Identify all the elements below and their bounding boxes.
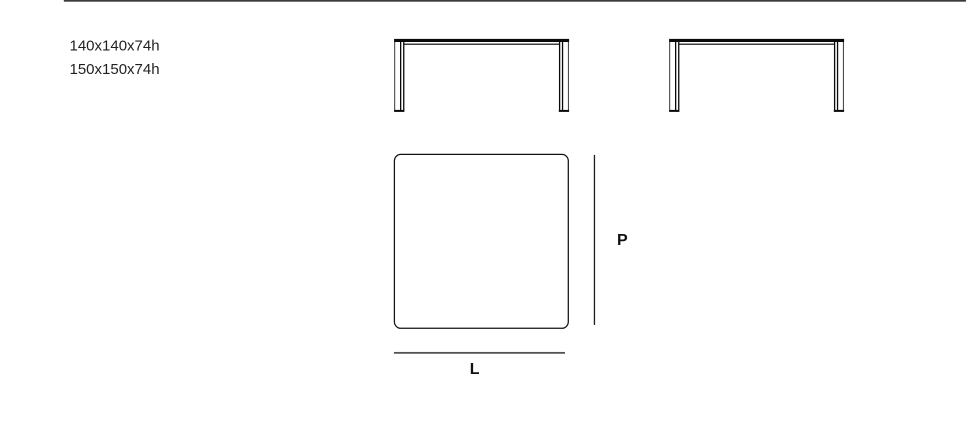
svg-text:150x150x74h: 150x150x74h	[70, 61, 160, 78]
svg-text:P: P	[617, 232, 628, 249]
svg-text:140x140x74h: 140x140x74h	[70, 38, 160, 55]
svg-text:L: L	[470, 361, 480, 378]
